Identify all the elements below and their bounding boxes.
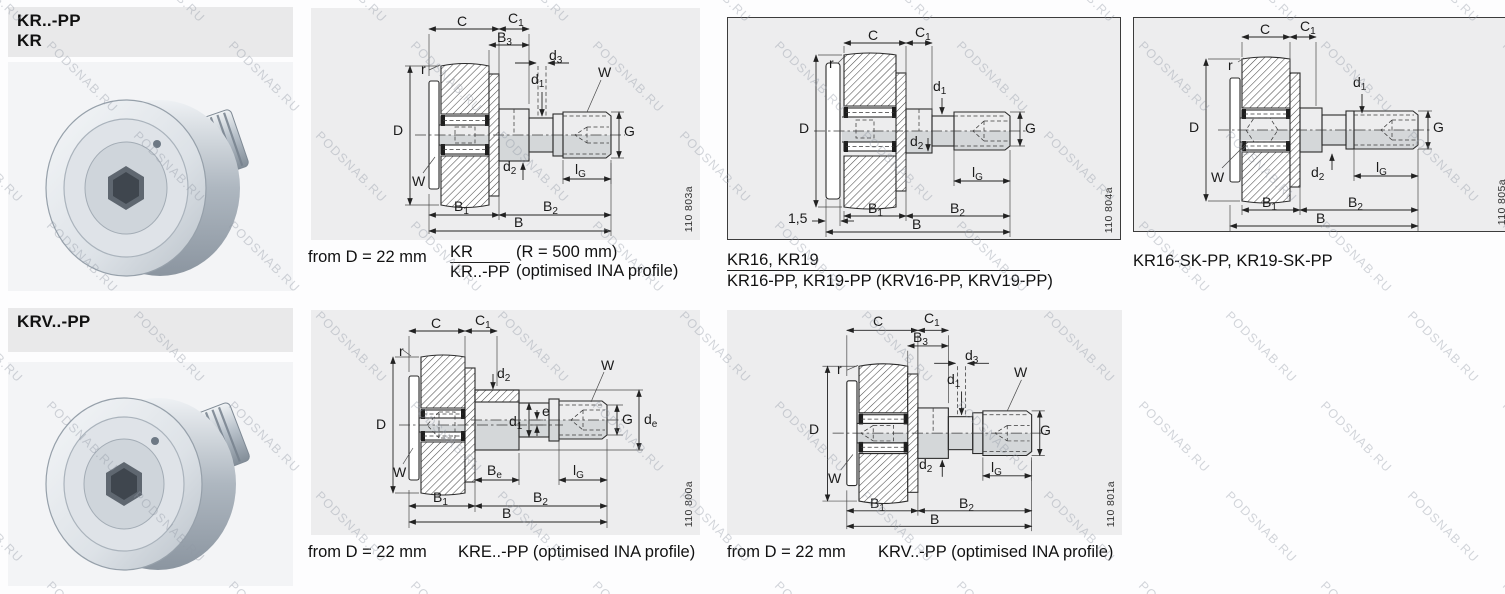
caption-krv-text: KRV..-PP (optimised INA profile) xyxy=(878,543,1113,562)
series-header-bottom: KRV..-PP xyxy=(8,308,293,352)
caption-kr16-kr19-line2: KR16-PP, KR19-PP (KRV16-PP, KRV19-PP) xyxy=(727,272,1053,290)
dim-label-d2: d2 xyxy=(503,159,516,179)
catalog-page: KR..-PP KR xyxy=(0,0,1505,594)
dim-label-d2: d2 xyxy=(919,457,932,477)
dim-label-d-outer: D xyxy=(799,121,809,136)
dim-label-b2: B2 xyxy=(533,490,548,510)
figure-number-110-801a: 110 801a xyxy=(1105,481,1117,527)
dim-label-d-outer: D xyxy=(809,422,819,437)
dim-label-de: de xyxy=(644,412,657,432)
figure-number-110-800a: 110 800a xyxy=(683,481,695,527)
watermark-text: PODSNAB.RU xyxy=(772,579,849,594)
dim-label-lg: lG xyxy=(575,162,586,182)
caption-kr-note-profile: (optimised INA profile) xyxy=(516,262,678,281)
dim-label-r: r xyxy=(829,56,834,71)
dim-label-c1: C1 xyxy=(508,11,524,31)
caption-kr-fraction: KR KR..-PP xyxy=(450,243,510,281)
dim-label-b2: B2 xyxy=(1348,195,1363,215)
dim-label-g: G xyxy=(1040,423,1051,438)
dim-label-w-top: W xyxy=(598,65,611,80)
dim-label-w-bottom: W xyxy=(828,471,841,486)
figure-panel-kr16-kr19: C C1 r D d1 d2 G lG 1,5 B1 B2 B 110 804a xyxy=(727,17,1121,240)
figure-panel-kr16-sk: C C1 r D d1 d2 G lG W B1 B2 B 110 805a xyxy=(1133,17,1505,232)
dim-label-b: B xyxy=(502,506,511,521)
dim-label-lg: lG xyxy=(972,165,983,185)
caption-kr16-kr19-line1: KR16, KR19 xyxy=(727,250,1040,271)
caption-kr-note-r: (R = 500 mm) xyxy=(516,243,678,262)
figure-panel-kre-pp: C C1 r d2 W e d1 G de D W Be lG B1 B2 B … xyxy=(311,310,700,535)
dim-label-d-outer: D xyxy=(376,417,386,432)
dim-label-c1: C1 xyxy=(475,313,491,333)
dim-label-be: Be xyxy=(487,463,502,483)
dim-label-lg: lG xyxy=(1376,160,1387,180)
watermark-text: PODSNAB.RU xyxy=(1223,489,1300,566)
dim-label-g: G xyxy=(1025,121,1036,136)
dim-label-chamfer: 1,5 xyxy=(788,211,807,226)
dim-label-w-bottom: W xyxy=(412,174,425,189)
figure-number-110-805a: 110 805a xyxy=(1496,179,1505,225)
dim-label-c: C xyxy=(457,14,467,29)
dim-label-w-top: W xyxy=(1014,365,1027,380)
watermark-text: PODSNAB.RU xyxy=(954,579,1031,594)
dim-label-d2: d2 xyxy=(910,134,923,154)
dim-label-b: B xyxy=(514,215,523,230)
drawing-kr16-kr19 xyxy=(728,18,1120,239)
bearing-photo-krv xyxy=(8,362,293,586)
dim-label-c1: C1 xyxy=(915,25,931,45)
dim-label-b3: B3 xyxy=(913,330,928,350)
dim-label-g: G xyxy=(622,412,633,427)
dim-label-lg: lG xyxy=(573,463,584,483)
dim-label-b1: B1 xyxy=(870,496,885,516)
dim-label-c: C xyxy=(868,28,878,43)
series-title-kr: KR xyxy=(17,31,293,51)
dim-label-d1: d1 xyxy=(531,72,544,92)
dim-label-r: r xyxy=(1228,58,1233,73)
dim-label-d1: d1 xyxy=(509,414,522,434)
caption-kr16-kr19: KR16, KR19 KR16-PP, KR19-PP (KRV16-PP, K… xyxy=(727,250,1053,291)
series-title-krv-pp: KRV..-PP xyxy=(17,312,293,332)
dim-label-r: r xyxy=(399,344,404,359)
dim-label-b2: B2 xyxy=(959,496,974,516)
caption-kr-notes: (R = 500 mm) (optimised INA profile) xyxy=(516,243,678,281)
dim-label-b1: B1 xyxy=(1262,195,1277,215)
dim-label-c: C xyxy=(873,314,883,329)
caption-kr-fraction-top: KR xyxy=(450,243,510,263)
watermark-text: PODSNAB.RU xyxy=(1405,309,1482,386)
bearing-photo-kr xyxy=(8,62,293,291)
watermark-text: PODSNAB.RU xyxy=(590,579,667,594)
dim-label-b: B xyxy=(1316,211,1325,226)
figure-panel-krv-pp: C C1 B3 d3 d1 W r D G W d2 lG B1 B2 B 11… xyxy=(727,310,1122,535)
figure-number-110-803a: 110 803a xyxy=(683,186,695,232)
watermark-text: PODSNAB.RU xyxy=(1500,399,1505,476)
dim-label-b1: B1 xyxy=(433,490,448,510)
dim-label-b1: B1 xyxy=(454,199,469,219)
dim-label-b2: B2 xyxy=(950,201,965,221)
watermark-text: PODSNAB.RU xyxy=(1223,309,1300,386)
dim-label-d1: d1 xyxy=(1353,75,1366,95)
dim-label-r: r xyxy=(837,362,842,377)
dim-label-b: B xyxy=(930,512,939,527)
watermark-text: PODSNAB.RU xyxy=(1500,579,1505,594)
series-header-top: KR..-PP KR xyxy=(8,7,293,57)
caption-krv-from-d: from D = 22 mm xyxy=(727,543,846,562)
figure-number-110-804a: 110 804a xyxy=(1103,187,1115,233)
watermark-text: PODSNAB.RU xyxy=(1405,489,1482,566)
bearing-photo-kr-image xyxy=(8,62,293,291)
drawing-kre-pp xyxy=(311,310,700,535)
watermark-text: PODSNAB.RU xyxy=(1136,579,1213,594)
watermark-text: PODSNAB.RU xyxy=(1136,399,1213,476)
series-title-kr-pp: KR..-PP xyxy=(17,11,293,31)
dim-label-d3: d3 xyxy=(549,48,562,68)
dim-label-lg: lG xyxy=(991,460,1002,480)
dim-label-d3: d3 xyxy=(965,348,978,368)
dim-label-b1: B1 xyxy=(868,201,883,221)
dim-label-w-bottom: W xyxy=(393,465,406,480)
dim-label-r: r xyxy=(421,62,426,77)
bearing-photo-krv-image xyxy=(8,362,293,586)
dim-label-w: W xyxy=(1211,170,1224,185)
dim-label-c: C xyxy=(431,316,441,331)
dim-label-d1: d1 xyxy=(947,372,960,392)
dim-label-e: e xyxy=(542,404,550,419)
dim-label-c1: C1 xyxy=(924,311,940,331)
dim-label-c1: C1 xyxy=(1300,19,1316,39)
caption-kr-from-d: from D = 22 mm xyxy=(308,248,427,267)
watermark-text: PODSNAB.RU xyxy=(1318,579,1395,594)
caption-kr-fraction-bottom: KR..-PP xyxy=(450,263,510,281)
dim-label-b: B xyxy=(912,217,921,232)
caption-kre-from-d: from D = 22 mm xyxy=(308,543,427,562)
dim-label-d1: d1 xyxy=(933,79,946,99)
dim-label-d-outer: D xyxy=(393,123,403,138)
dim-label-g: G xyxy=(1433,120,1444,135)
caption-kr16-sk: KR16-SK-PP, KR19-SK-PP xyxy=(1133,252,1333,271)
dim-label-w-top: W xyxy=(601,358,614,373)
watermark-text: PODSNAB.RU xyxy=(1318,399,1395,476)
caption-kre-text: KRE..-PP (optimised INA profile) xyxy=(458,543,695,562)
dim-label-c: C xyxy=(1260,22,1270,37)
dim-label-d-outer: D xyxy=(1189,120,1199,135)
figure-panel-kr-pp: C C1 B3 d3 d1 W r D G W d2 lG B1 B2 B 11… xyxy=(311,8,700,240)
dim-label-d2: d2 xyxy=(497,366,510,386)
dim-label-g: G xyxy=(624,124,635,139)
dim-label-b3: B3 xyxy=(497,30,512,50)
watermark-text: PODSNAB.RU xyxy=(408,579,485,594)
dim-label-b2: B2 xyxy=(543,199,558,219)
dim-label-d2: d2 xyxy=(1311,165,1324,185)
